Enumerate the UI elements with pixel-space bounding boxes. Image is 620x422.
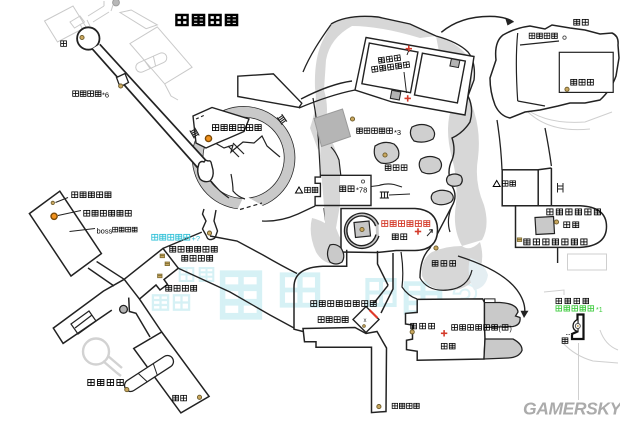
svg-text:*6: *6	[102, 91, 109, 100]
svg-text:*3: *3	[394, 128, 401, 137]
svg-text:*1: *1	[596, 307, 603, 314]
svg-text:boss: boss	[97, 227, 113, 236]
svg-text:+?: +?	[192, 234, 201, 243]
svg-text:*78: *78	[356, 186, 367, 195]
svg-text:): )	[510, 326, 512, 333]
svg-text:x: x	[364, 318, 367, 324]
svg-text:GAMERSKY: GAMERSKY	[523, 399, 620, 419]
